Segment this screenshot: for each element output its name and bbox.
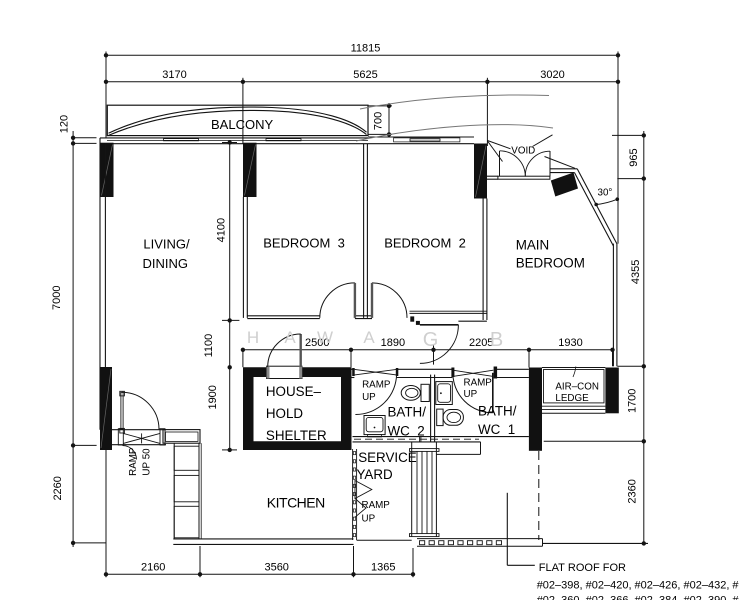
svg-text:965: 965 xyxy=(628,148,640,166)
svg-text:3560: 3560 xyxy=(264,562,288,574)
svg-text:BEDROOM: BEDROOM xyxy=(516,256,585,271)
svg-text:30°: 30° xyxy=(598,188,613,199)
svg-text:700: 700 xyxy=(372,112,384,130)
svg-text:UP 50: UP 50 xyxy=(142,448,153,476)
svg-text:3020: 3020 xyxy=(540,69,564,81)
svg-text:HOUSE–: HOUSE– xyxy=(266,384,322,399)
svg-text:SERVICE: SERVICE xyxy=(358,450,417,465)
svg-text:7000: 7000 xyxy=(51,285,63,309)
svg-text:LIVING/: LIVING/ xyxy=(143,236,190,251)
svg-text:BEDROOM 2: BEDROOM 2 xyxy=(384,236,466,251)
svg-text:2360: 2360 xyxy=(626,479,638,503)
svg-text:1700: 1700 xyxy=(626,389,638,413)
svg-text:BATH/: BATH/ xyxy=(478,404,517,419)
svg-text:VOID: VOID xyxy=(511,146,535,157)
svg-text:5625: 5625 xyxy=(353,69,377,81)
svg-text:1365: 1365 xyxy=(371,562,395,574)
svg-text:RAMP: RAMP xyxy=(362,500,391,511)
svg-text:1890: 1890 xyxy=(381,337,405,349)
svg-text:RAMP: RAMP xyxy=(464,377,493,388)
svg-text:YARD: YARD xyxy=(357,467,394,482)
svg-text:WC 2: WC 2 xyxy=(388,424,425,439)
svg-text:B: B xyxy=(490,329,503,351)
svg-text:H: H xyxy=(247,328,259,347)
svg-text:RAMP: RAMP xyxy=(362,380,391,391)
svg-text:BALCONY: BALCONY xyxy=(211,117,273,132)
svg-text:1930: 1930 xyxy=(558,337,582,349)
svg-text:LEDGE: LEDGE xyxy=(555,393,589,404)
svg-text:G: G xyxy=(423,329,439,351)
svg-text:120: 120 xyxy=(58,115,70,133)
svg-text:A: A xyxy=(363,328,375,347)
svg-text:#02–398, #02–420, #02–426, #02: #02–398, #02–420, #02–426, #02–432, #02–… xyxy=(537,580,739,592)
svg-text:4355: 4355 xyxy=(630,260,642,284)
svg-text:A: A xyxy=(284,328,296,347)
svg-text:WC 1: WC 1 xyxy=(478,422,515,437)
svg-text:W: W xyxy=(317,328,333,347)
svg-text:BEDROOM 3: BEDROOM 3 xyxy=(263,236,345,251)
svg-text:BATH/: BATH/ xyxy=(388,404,427,419)
svg-text:11815: 11815 xyxy=(351,43,381,55)
svg-text:#02–360, #02–366, #02–384, #02: #02–360, #02–366, #02–384, #02–390, #02–… xyxy=(537,595,739,600)
svg-text:2160: 2160 xyxy=(141,562,165,574)
svg-text:AIR–CON: AIR–CON xyxy=(555,381,599,392)
svg-text:HOLD: HOLD xyxy=(266,406,304,421)
svg-text:RAMP: RAMP xyxy=(128,447,139,476)
svg-text:1900: 1900 xyxy=(207,385,219,409)
svg-text:MAIN: MAIN xyxy=(516,238,549,253)
svg-text:SHELTER: SHELTER xyxy=(266,428,327,443)
svg-text:UP: UP xyxy=(362,514,376,525)
svg-text:FLAT ROOF FOR: FLAT ROOF FOR xyxy=(539,562,626,574)
svg-text:1100: 1100 xyxy=(203,334,215,358)
svg-text:DINING: DINING xyxy=(143,256,189,271)
svg-text:KITCHEN: KITCHEN xyxy=(267,495,325,511)
svg-text:2260: 2260 xyxy=(52,476,64,500)
svg-text:UP: UP xyxy=(464,389,478,400)
svg-text:UP: UP xyxy=(362,392,376,403)
svg-text:4100: 4100 xyxy=(216,218,228,242)
svg-text:3170: 3170 xyxy=(162,69,186,81)
